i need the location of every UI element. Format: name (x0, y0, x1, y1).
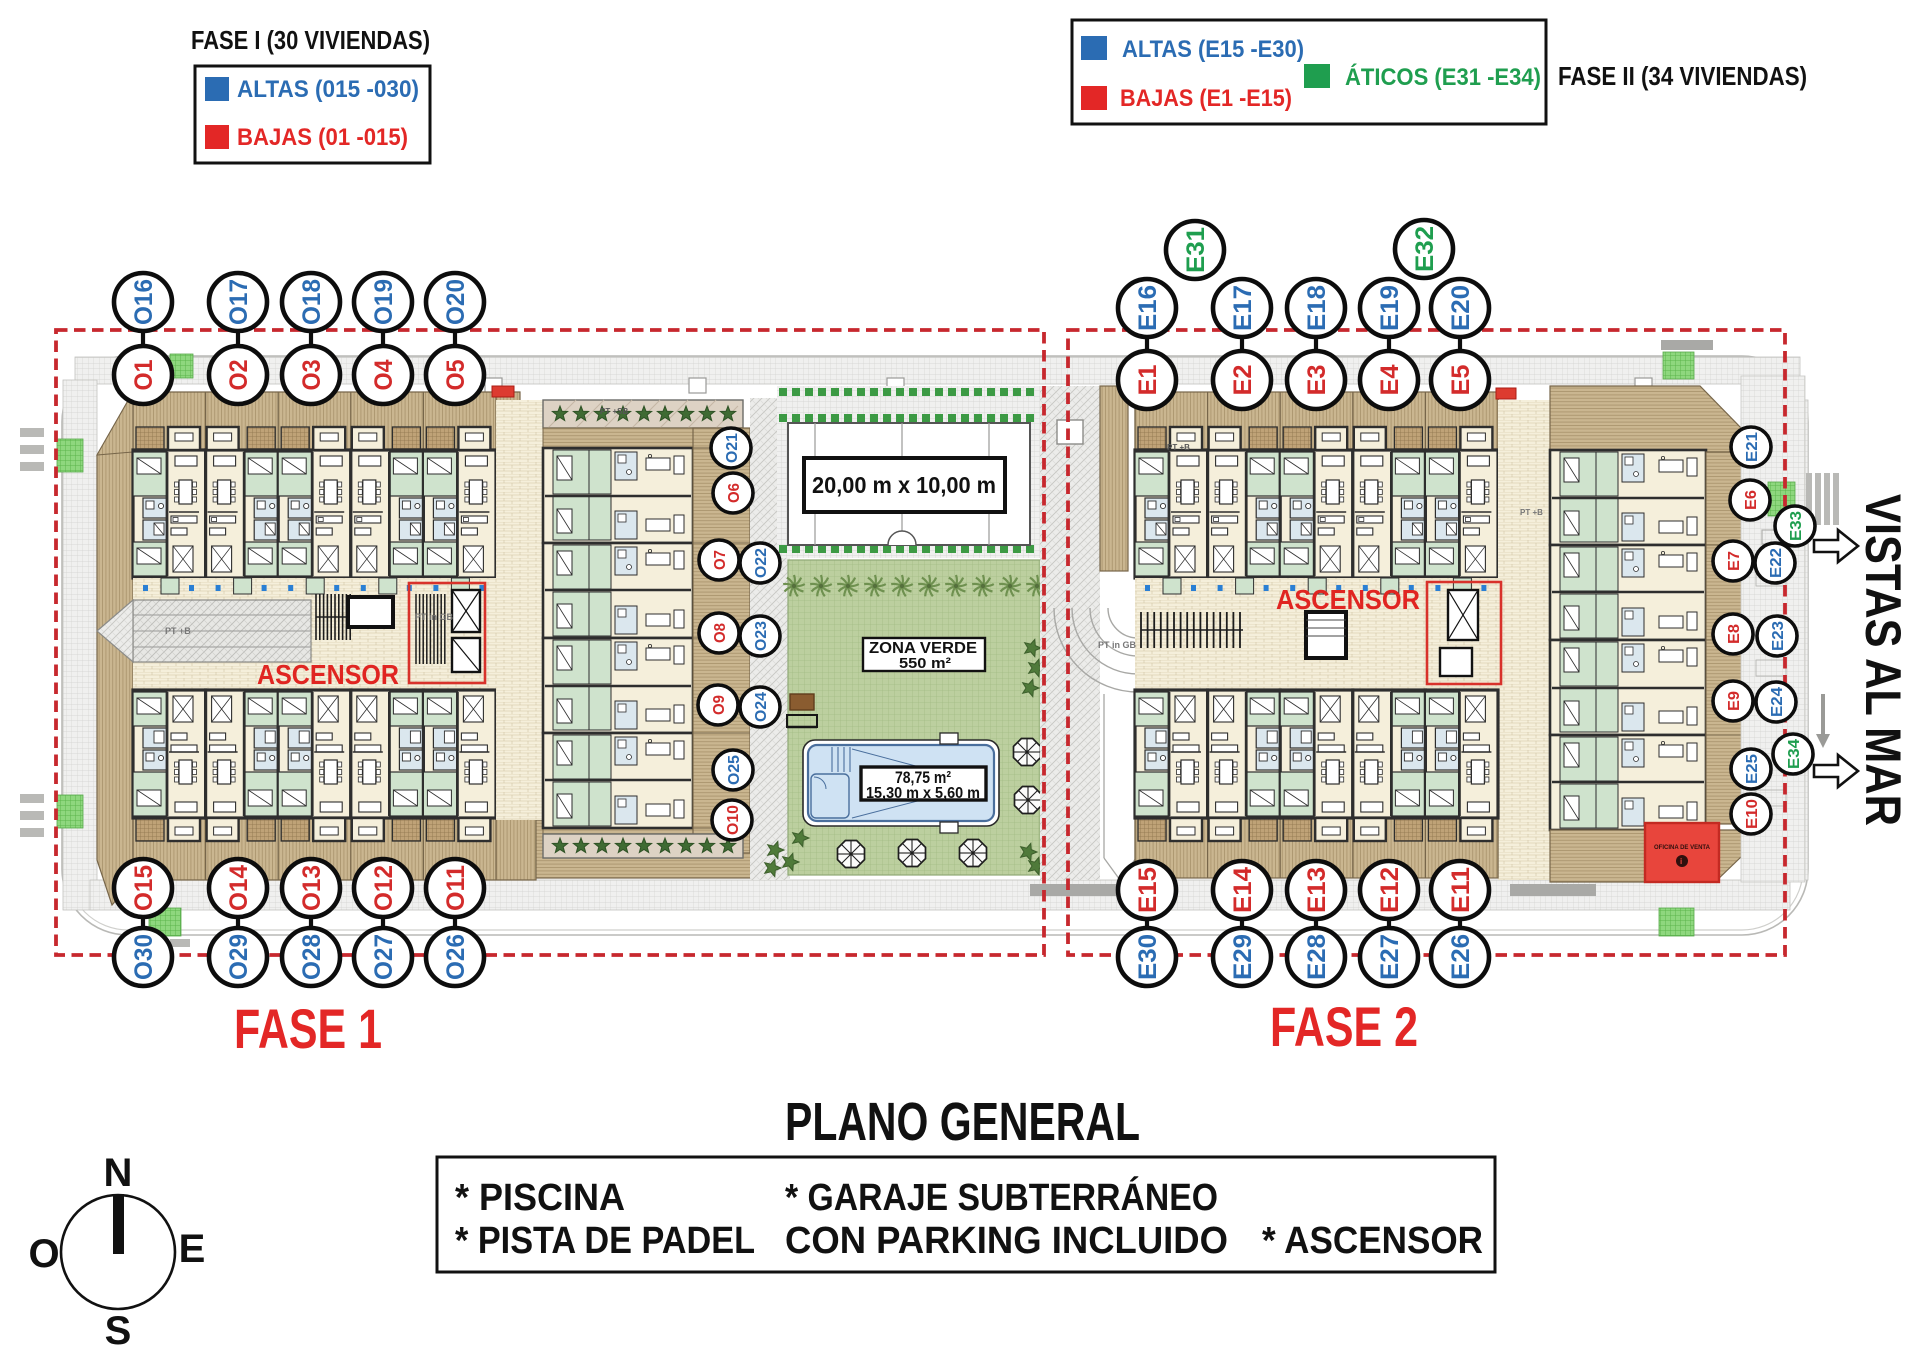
svg-text:E31: E31 (1182, 227, 1210, 273)
svg-text:O20: O20 (442, 279, 470, 325)
svg-text:O7: O7 (712, 550, 729, 570)
svg-text:O15: O15 (130, 865, 158, 911)
svg-text:E5: E5 (1447, 364, 1475, 395)
svg-text:PT +B: PT +B (1520, 508, 1543, 517)
svg-text:O24: O24 (753, 692, 770, 722)
svg-text:O26: O26 (442, 934, 470, 980)
svg-text:O16: O16 (130, 279, 158, 325)
svg-text:E27: E27 (1376, 934, 1404, 980)
svg-text:ÁTICOS (E31 -E34): ÁTICOS (E31 -E34) (1345, 63, 1541, 91)
svg-text:E7: E7 (1726, 551, 1743, 571)
svg-text:O29: O29 (225, 934, 253, 980)
svg-text:O: O (28, 1232, 59, 1276)
svg-text:O25: O25 (726, 755, 743, 785)
svg-text:BAJAS (E1 -E15): BAJAS (E1 -E15) (1120, 85, 1292, 112)
svg-text:PT in GB: PT in GB (415, 612, 454, 622)
svg-text:E32: E32 (1411, 226, 1439, 272)
svg-text:ASCENSOR: ASCENSOR (1276, 584, 1420, 615)
svg-text:E12: E12 (1376, 867, 1404, 913)
svg-text:FASE II (34 VIVIENDAS): FASE II (34 VIVIENDAS) (1558, 61, 1807, 91)
svg-text:E17: E17 (1229, 285, 1257, 331)
svg-text:550 m²: 550 m² (899, 655, 951, 672)
svg-text:E8: E8 (1726, 624, 1743, 644)
svg-text:PT +B: PT +B (165, 626, 191, 636)
svg-text:E28: E28 (1303, 934, 1331, 980)
svg-text:O19: O19 (370, 279, 398, 325)
svg-text:CON PARKING INCLUIDO: CON PARKING INCLUIDO (785, 1220, 1228, 1262)
svg-text:O17: O17 (225, 279, 253, 325)
svg-text:E6: E6 (1743, 490, 1760, 510)
svg-text:VISTAS AL MAR: VISTAS AL MAR (1855, 494, 1911, 826)
svg-text:O4: O4 (370, 359, 398, 390)
svg-text:O10: O10 (725, 805, 742, 835)
svg-text:O5: O5 (442, 359, 470, 390)
svg-text:E9: E9 (1726, 691, 1743, 711)
svg-text:ALTAS (015 -030): ALTAS (015 -030) (237, 76, 419, 103)
svg-text:* GARAJE SUBTERRÁNEO: * GARAJE SUBTERRÁNEO (785, 1175, 1218, 1219)
svg-text:E34: E34 (1786, 739, 1803, 769)
svg-text:O27: O27 (370, 934, 398, 980)
svg-text:O2: O2 (225, 360, 253, 391)
svg-text:E1: E1 (1134, 364, 1162, 395)
svg-text:FASE 2: FASE 2 (1270, 995, 1418, 1058)
svg-text:E23: E23 (1770, 621, 1787, 651)
svg-text:PLANO GENERAL: PLANO GENERAL (785, 1092, 1140, 1152)
svg-text:O21: O21 (724, 433, 741, 463)
svg-text:20,00 m x 10,00 m: 20,00 m x 10,00 m (812, 472, 996, 498)
svg-text:O23: O23 (753, 621, 770, 651)
svg-text:E18: E18 (1303, 285, 1331, 331)
svg-text:i: i (1680, 857, 1682, 866)
svg-text:FASE 1: FASE 1 (234, 997, 382, 1060)
svg-text:E: E (179, 1227, 206, 1271)
svg-text:E16: E16 (1134, 285, 1162, 331)
svg-text:OFICINA DE VENTA: OFICINA DE VENTA (1654, 845, 1711, 851)
svg-text:PT +SB: PT +SB (600, 407, 628, 416)
svg-text:E33: E33 (1788, 511, 1805, 541)
svg-text:ASCENSOR: ASCENSOR (257, 659, 399, 690)
svg-text:E13: E13 (1303, 867, 1331, 913)
svg-text:E24: E24 (1769, 687, 1786, 717)
svg-text:O6: O6 (726, 483, 743, 503)
svg-text:E29: E29 (1229, 934, 1257, 980)
svg-text:O13: O13 (298, 865, 326, 911)
svg-text:O28: O28 (298, 934, 326, 980)
svg-text:O14: O14 (225, 865, 253, 911)
svg-text:E25: E25 (1744, 754, 1761, 784)
svg-text:O8: O8 (712, 623, 729, 643)
svg-text:PT +B: PT +B (1167, 443, 1190, 452)
svg-text:O12: O12 (370, 865, 398, 911)
svg-text:ALTAS (E15 -E30): ALTAS (E15 -E30) (1122, 36, 1304, 63)
svg-text:E2: E2 (1229, 365, 1257, 396)
svg-text:FASE I (30 VIVIENDAS): FASE I (30 VIVIENDAS) (191, 25, 430, 55)
svg-text:E30: E30 (1134, 934, 1162, 980)
svg-text:E4: E4 (1376, 364, 1404, 395)
svg-text:E10: E10 (1744, 799, 1761, 829)
svg-text:E20: E20 (1447, 285, 1475, 331)
svg-text:* PISCINA: * PISCINA (455, 1177, 625, 1219)
svg-text:O11: O11 (442, 865, 470, 911)
svg-text:O9: O9 (711, 695, 728, 715)
svg-text:S: S (105, 1309, 132, 1353)
svg-text:O22: O22 (753, 548, 770, 578)
svg-text:BAJAS (01 -015): BAJAS (01 -015) (237, 124, 408, 151)
svg-text:O3: O3 (298, 360, 326, 391)
svg-text:O30: O30 (130, 934, 158, 980)
svg-text:E22: E22 (1768, 548, 1785, 578)
svg-text:15,30 m x 5,60 m: 15,30 m x 5,60 m (866, 785, 980, 802)
svg-text:PT in GB: PT in GB (1098, 640, 1137, 650)
svg-text:E21: E21 (1744, 432, 1761, 462)
svg-text:N: N (104, 1151, 133, 1195)
svg-text:E11: E11 (1447, 867, 1475, 913)
svg-text:O18: O18 (298, 279, 326, 325)
svg-text:* ASCENSOR: * ASCENSOR (1262, 1220, 1483, 1262)
svg-text:O1: O1 (130, 359, 158, 390)
svg-text:E15: E15 (1134, 867, 1162, 913)
svg-text:* PISTA DE PADEL: * PISTA DE PADEL (455, 1220, 755, 1262)
svg-text:E14: E14 (1229, 867, 1257, 913)
svg-text:E19: E19 (1376, 285, 1404, 331)
svg-text:E26: E26 (1447, 934, 1475, 980)
svg-text:E3: E3 (1303, 365, 1331, 396)
